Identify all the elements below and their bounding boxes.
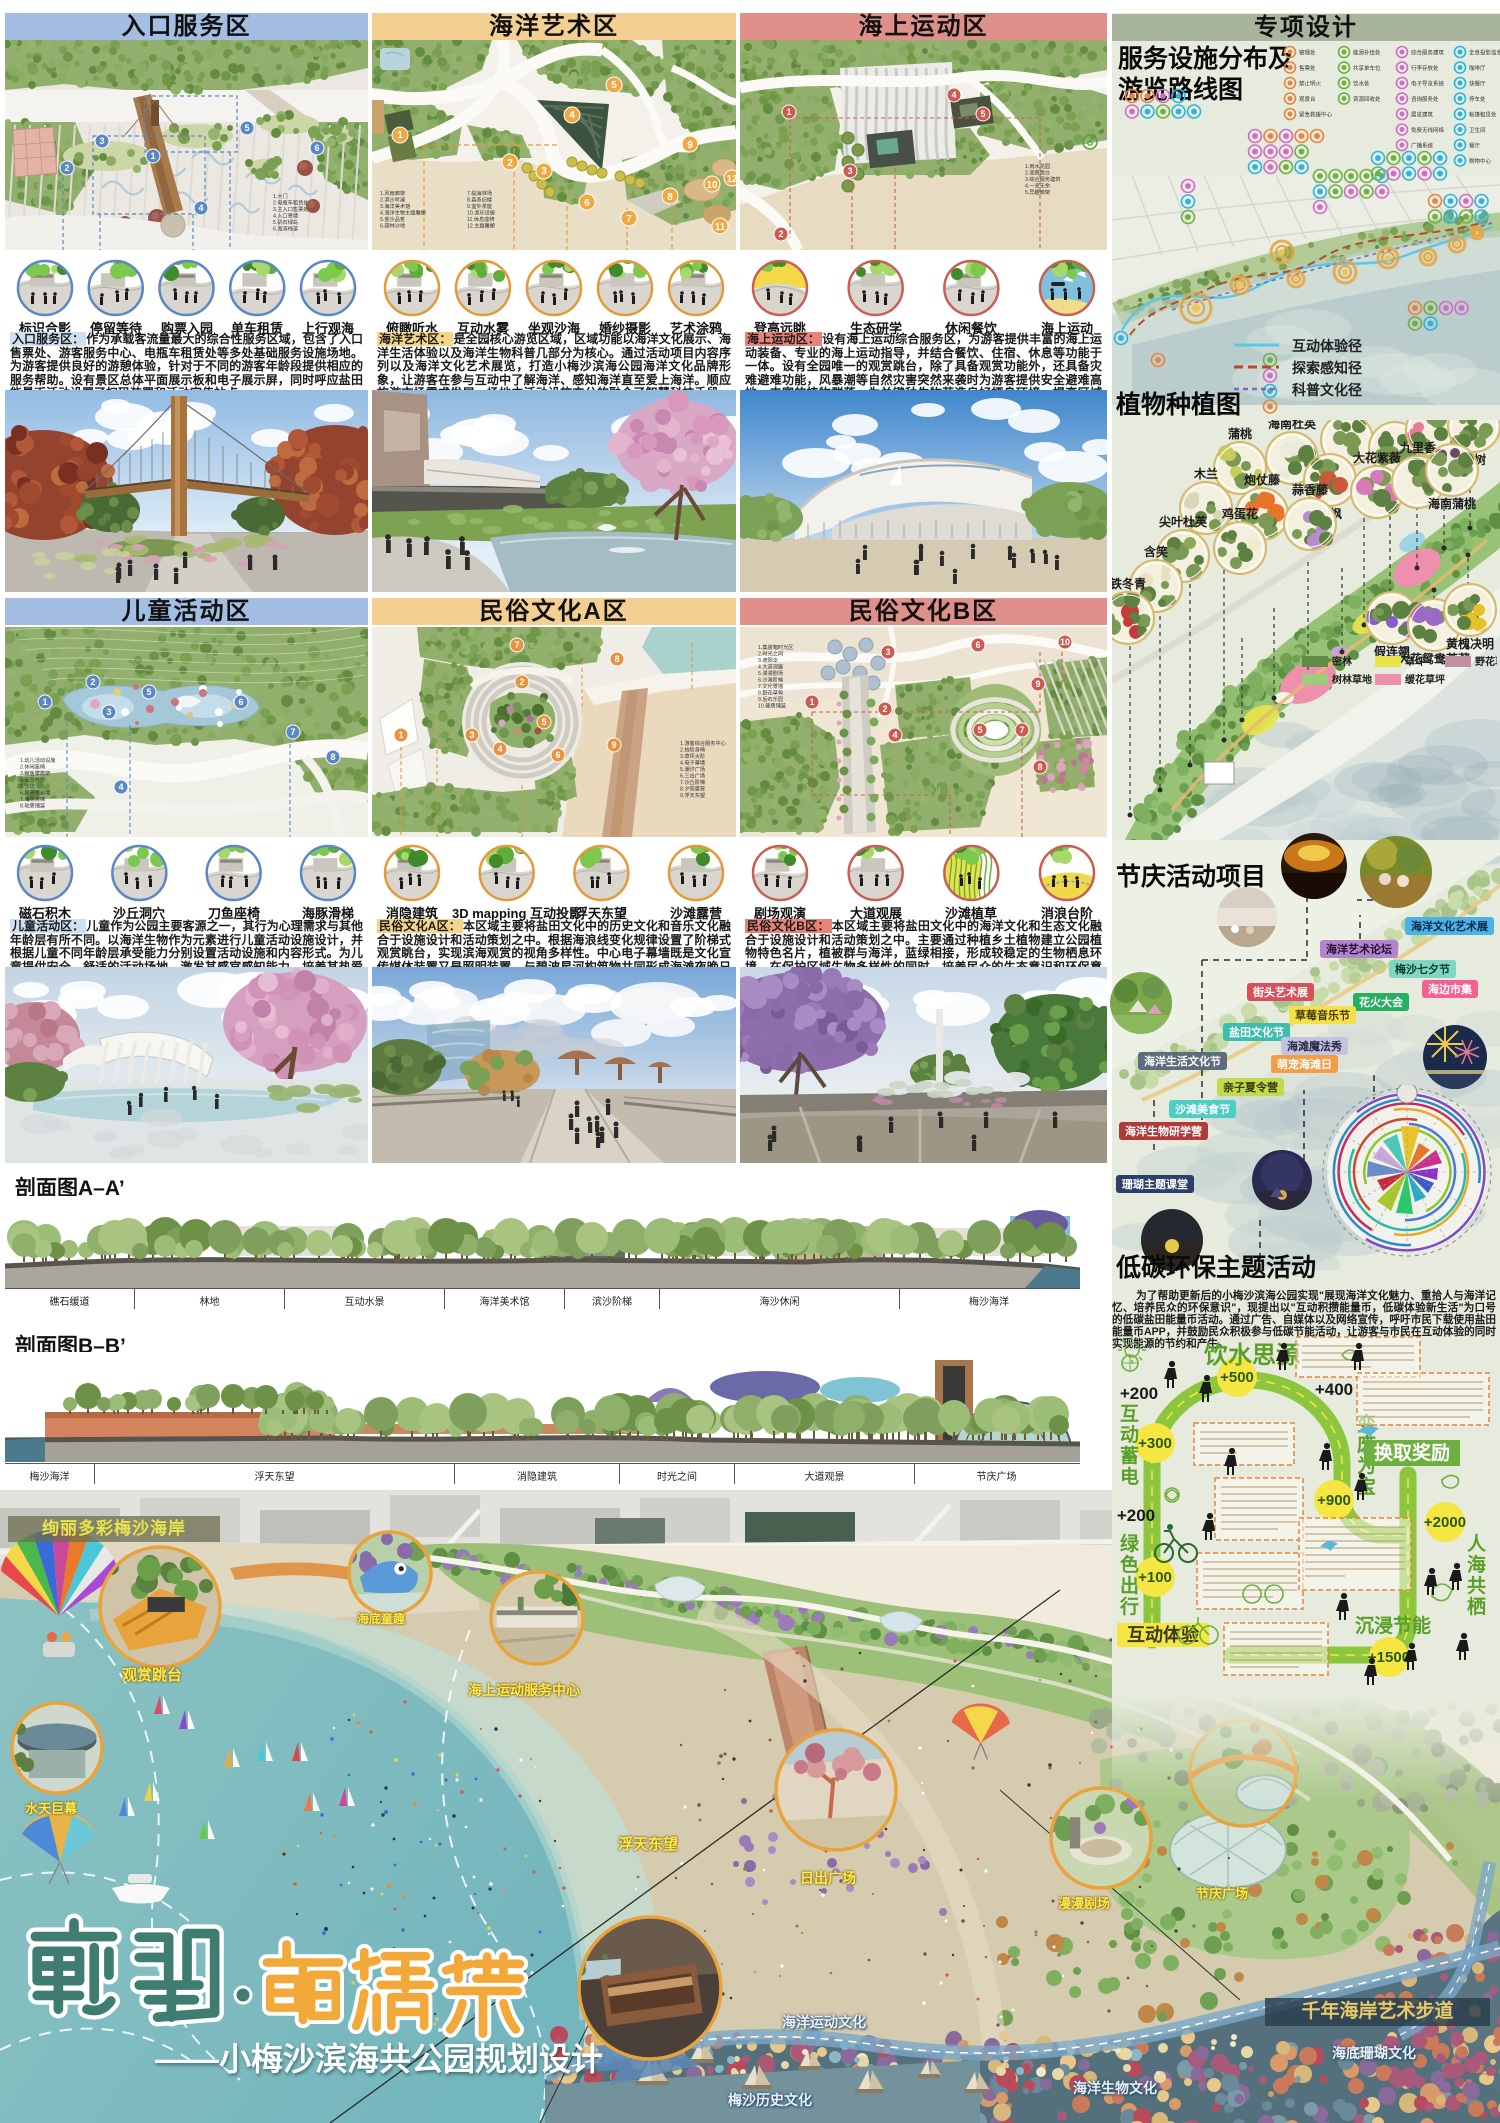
svg-text:7.沙丘阶梯: 7.沙丘阶梯 bbox=[680, 778, 705, 786]
svg-text:2.电瓶车租赁处: 2.电瓶车租赁处 bbox=[273, 199, 308, 207]
svg-text:11.休息座椅: 11.休息座椅 bbox=[467, 215, 495, 223]
svg-text:4: 4 bbox=[569, 110, 575, 121]
svg-text:10.硬质铺装: 10.硬质铺装 bbox=[758, 702, 786, 710]
svg-text:8.夕阳露营: 8.夕阳露营 bbox=[680, 785, 705, 793]
svg-text:5.异趣廊架: 5.异趣廊架 bbox=[1025, 188, 1050, 196]
svg-text:2: 2 bbox=[882, 704, 887, 714]
svg-text:1: 1 bbox=[150, 151, 155, 161]
svg-text:2: 2 bbox=[90, 677, 95, 687]
svg-text:6: 6 bbox=[555, 750, 560, 760]
svg-text:4: 4 bbox=[497, 744, 502, 754]
svg-text:11: 11 bbox=[715, 222, 726, 233]
svg-text:1: 1 bbox=[786, 107, 791, 117]
svg-text:7.海豚滑梯: 7.海豚滑梯 bbox=[20, 795, 45, 803]
svg-text:4.大道观展: 4.大道观展 bbox=[758, 663, 783, 671]
svg-text:1.风雨廊架: 1.风雨廊架 bbox=[380, 189, 405, 197]
svg-text:5: 5 bbox=[611, 80, 617, 91]
svg-text:8: 8 bbox=[1037, 762, 1042, 772]
svg-text:2: 2 bbox=[519, 677, 524, 687]
svg-text:3.鲸鱼攀爬架: 3.鲸鱼攀爬架 bbox=[20, 769, 50, 777]
svg-text:2.滨沙听澜: 2.滨沙听澜 bbox=[380, 196, 405, 204]
svg-text:6: 6 bbox=[314, 143, 319, 153]
svg-text:6.疏林沙地: 6.疏林沙地 bbox=[380, 222, 405, 230]
svg-text:5: 5 bbox=[977, 725, 982, 735]
svg-text:3.草坪大阶: 3.草坪大阶 bbox=[680, 752, 706, 760]
svg-text:3.综合服务建筑: 3.综合服务建筑 bbox=[1025, 175, 1061, 183]
svg-text:2: 2 bbox=[778, 229, 783, 239]
svg-text:9.室外茶座: 9.室外茶座 bbox=[467, 202, 492, 210]
svg-text:4: 4 bbox=[118, 782, 123, 792]
svg-text:10: 10 bbox=[1060, 637, 1070, 647]
svg-text:2.观景跳台: 2.观景跳台 bbox=[1025, 169, 1050, 177]
svg-text:2: 2 bbox=[507, 158, 513, 169]
svg-text:6.沙滩阶梯: 6.沙滩阶梯 bbox=[758, 676, 783, 684]
svg-text:2: 2 bbox=[64, 163, 69, 173]
svg-text:3: 3 bbox=[106, 707, 111, 717]
svg-text:9: 9 bbox=[611, 740, 616, 750]
svg-text:5: 5 bbox=[244, 123, 249, 133]
svg-text:4.高空林桥: 4.高空林桥 bbox=[20, 776, 46, 784]
svg-text:4.一览无余: 4.一览无余 bbox=[1025, 182, 1051, 190]
svg-text:3.遮阳伞: 3.遮阳伞 bbox=[758, 656, 779, 664]
svg-text:3.海洋美术馆: 3.海洋美术馆 bbox=[380, 202, 410, 210]
svg-text:8: 8 bbox=[667, 192, 673, 203]
svg-text:1: 1 bbox=[809, 697, 814, 707]
svg-text:1.集装箱时光区: 1.集装箱时光区 bbox=[758, 643, 793, 651]
svg-text:5.潮汐广场: 5.潮汐广场 bbox=[680, 765, 705, 773]
svg-text:2.拾阶身椅: 2.拾阶身椅 bbox=[680, 746, 705, 754]
svg-text:6.蜃景攀岩墙: 6.蜃景攀岩墙 bbox=[20, 789, 50, 797]
svg-text:6: 6 bbox=[238, 697, 243, 707]
svg-text:4: 4 bbox=[951, 90, 956, 100]
svg-text:7: 7 bbox=[1019, 725, 1024, 735]
svg-text:7: 7 bbox=[290, 727, 295, 737]
svg-text:2.休闲座椅: 2.休闲座椅 bbox=[20, 763, 45, 771]
svg-text:12: 12 bbox=[726, 174, 736, 185]
svg-text:1.幼儿活动设施: 1.幼儿活动设施 bbox=[20, 756, 55, 764]
svg-text:1.游客综合服务中心: 1.游客综合服务中心 bbox=[680, 739, 726, 747]
svg-text:1: 1 bbox=[398, 730, 403, 740]
svg-text:6: 6 bbox=[975, 640, 980, 650]
svg-text:8.森系纪楼: 8.森系纪楼 bbox=[467, 196, 492, 204]
svg-text:2.时光之间: 2.时光之间 bbox=[758, 650, 783, 658]
svg-text:7: 7 bbox=[626, 214, 632, 225]
svg-text:10.游乐设施: 10.游乐设施 bbox=[467, 209, 495, 217]
svg-text:4.海洋生物主题雕塑: 4.海洋生物主题雕塑 bbox=[380, 209, 426, 217]
svg-text:3.主入口售票处: 3.主入口售票处 bbox=[273, 205, 308, 213]
svg-text:3: 3 bbox=[541, 166, 547, 177]
svg-text:6.三出广场: 6.三出广场 bbox=[680, 772, 705, 780]
svg-text:1: 1 bbox=[42, 697, 47, 707]
svg-text:8: 8 bbox=[614, 654, 619, 664]
svg-text:5: 5 bbox=[980, 109, 985, 119]
svg-text:7.临海林场: 7.临海林场 bbox=[467, 189, 492, 197]
svg-text:12.主题雕塑: 12.主题雕塑 bbox=[467, 222, 495, 230]
svg-text:5.矶石绿岛: 5.矶石绿岛 bbox=[273, 218, 298, 226]
svg-text:9: 9 bbox=[1035, 679, 1040, 689]
svg-text:5.漫漫剧场: 5.漫漫剧场 bbox=[758, 669, 783, 677]
svg-text:1.大门: 1.大门 bbox=[273, 192, 288, 200]
svg-text:9: 9 bbox=[687, 140, 693, 151]
svg-text:1: 1 bbox=[397, 130, 403, 141]
svg-text:5.沙坑: 5.沙坑 bbox=[20, 782, 35, 790]
svg-text:3: 3 bbox=[99, 136, 104, 146]
svg-text:4.入口景墙: 4.入口景墙 bbox=[273, 212, 298, 220]
svg-text:8.野花草甸: 8.野花草甸 bbox=[758, 689, 783, 697]
svg-text:1.雨水花园: 1.雨水花园 bbox=[1025, 162, 1050, 170]
svg-text:5.金沙品茗: 5.金沙品茗 bbox=[380, 215, 405, 223]
svg-text:4: 4 bbox=[892, 730, 897, 740]
svg-text:4.电子幕墙: 4.电子幕墙 bbox=[680, 759, 705, 767]
svg-text:7: 7 bbox=[514, 640, 519, 650]
svg-text:9.后石乐园: 9.后石乐园 bbox=[758, 695, 783, 703]
svg-text:8: 8 bbox=[330, 752, 335, 762]
svg-text:3: 3 bbox=[469, 730, 474, 740]
svg-text:5: 5 bbox=[146, 687, 151, 697]
svg-text:6.海滨栈道: 6.海滨栈道 bbox=[273, 225, 298, 233]
svg-text:3: 3 bbox=[847, 166, 852, 176]
svg-text:8.软质铺装: 8.软质铺装 bbox=[20, 802, 45, 810]
svg-text:9.浮天东望: 9.浮天东望 bbox=[680, 791, 705, 799]
svg-text:♻: ♻ bbox=[1086, 139, 1093, 148]
svg-text:10: 10 bbox=[706, 180, 718, 191]
svg-text:5: 5 bbox=[541, 717, 546, 727]
svg-text:3: 3 bbox=[885, 647, 890, 657]
svg-text:6: 6 bbox=[584, 198, 590, 209]
svg-text:4: 4 bbox=[198, 203, 203, 213]
svg-text:7.文化景墙: 7.文化景墙 bbox=[758, 682, 783, 690]
